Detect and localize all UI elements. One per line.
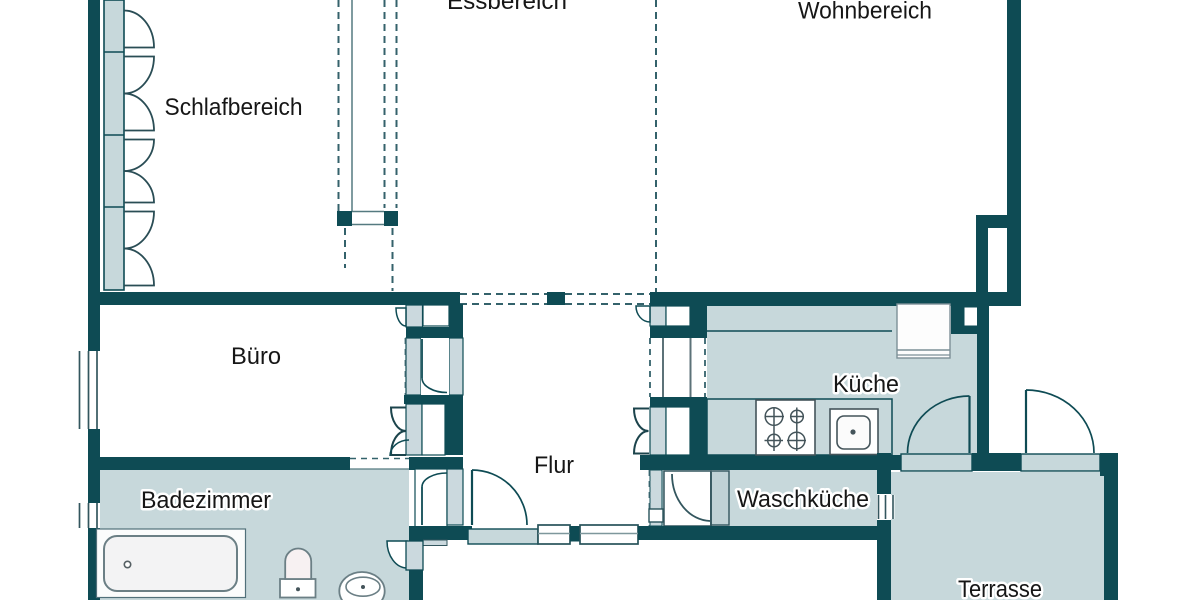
- svg-text:Schlafbereich: Schlafbereich: [165, 94, 303, 121]
- svg-text:Wohnbereich: Wohnbereich: [798, 0, 932, 25]
- svg-text:Essbereich: Essbereich: [447, 0, 567, 15]
- svg-text:Terrasse: Terrasse: [958, 576, 1042, 600]
- svg-text:Büro: Büro: [231, 343, 281, 370]
- svg-text:Waschküche: Waschküche: [737, 486, 869, 513]
- svg-text:Flur: Flur: [534, 452, 574, 479]
- svg-text:Badezimmer: Badezimmer: [141, 487, 271, 514]
- svg-text:Küche: Küche: [833, 371, 899, 398]
